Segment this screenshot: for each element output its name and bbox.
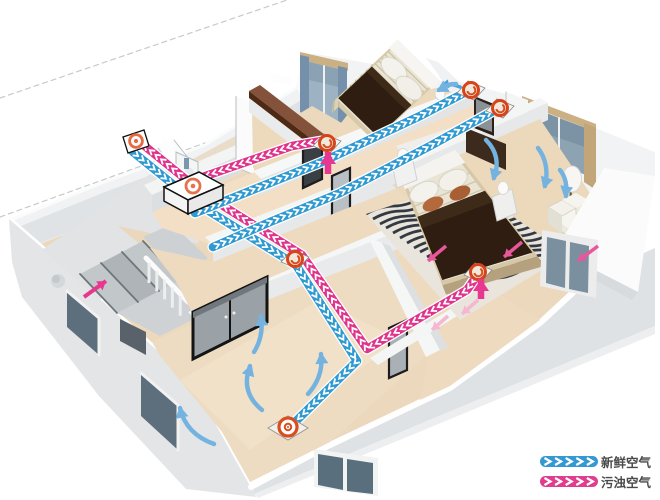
svg-text:污浊空气: 污浊空气 — [601, 475, 652, 490]
svg-text:新鲜空气: 新鲜空气 — [601, 455, 652, 470]
